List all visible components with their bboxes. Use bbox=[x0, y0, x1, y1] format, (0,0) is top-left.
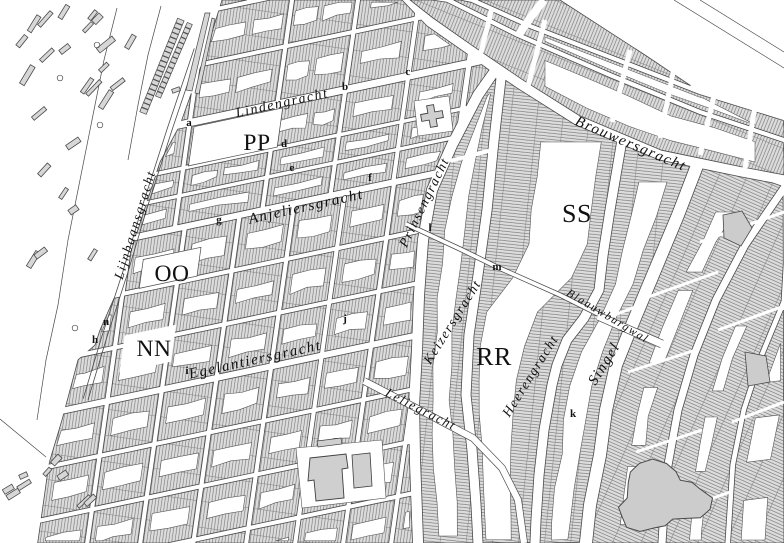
svg-text:m: m bbox=[492, 261, 501, 273]
svg-text:b: b bbox=[342, 81, 348, 93]
svg-text:g: g bbox=[216, 214, 222, 226]
svg-text:a: a bbox=[186, 117, 192, 129]
svg-text:f: f bbox=[368, 172, 372, 184]
svg-text:h: h bbox=[92, 334, 98, 346]
svg-text:OO: OO bbox=[155, 261, 190, 287]
svg-text:l: l bbox=[428, 222, 431, 234]
svg-text:RR: RR bbox=[476, 342, 512, 371]
svg-text:i: i bbox=[185, 365, 188, 377]
svg-text:c: c bbox=[406, 66, 411, 78]
svg-text:n: n bbox=[103, 316, 109, 328]
svg-text:d: d bbox=[281, 138, 287, 150]
svg-text:NN: NN bbox=[137, 336, 172, 362]
svg-text:j: j bbox=[342, 313, 347, 325]
svg-text:PP: PP bbox=[243, 130, 270, 156]
svg-text:k: k bbox=[570, 408, 577, 420]
svg-text:SS: SS bbox=[562, 199, 592, 228]
svg-text:e: e bbox=[290, 162, 295, 174]
